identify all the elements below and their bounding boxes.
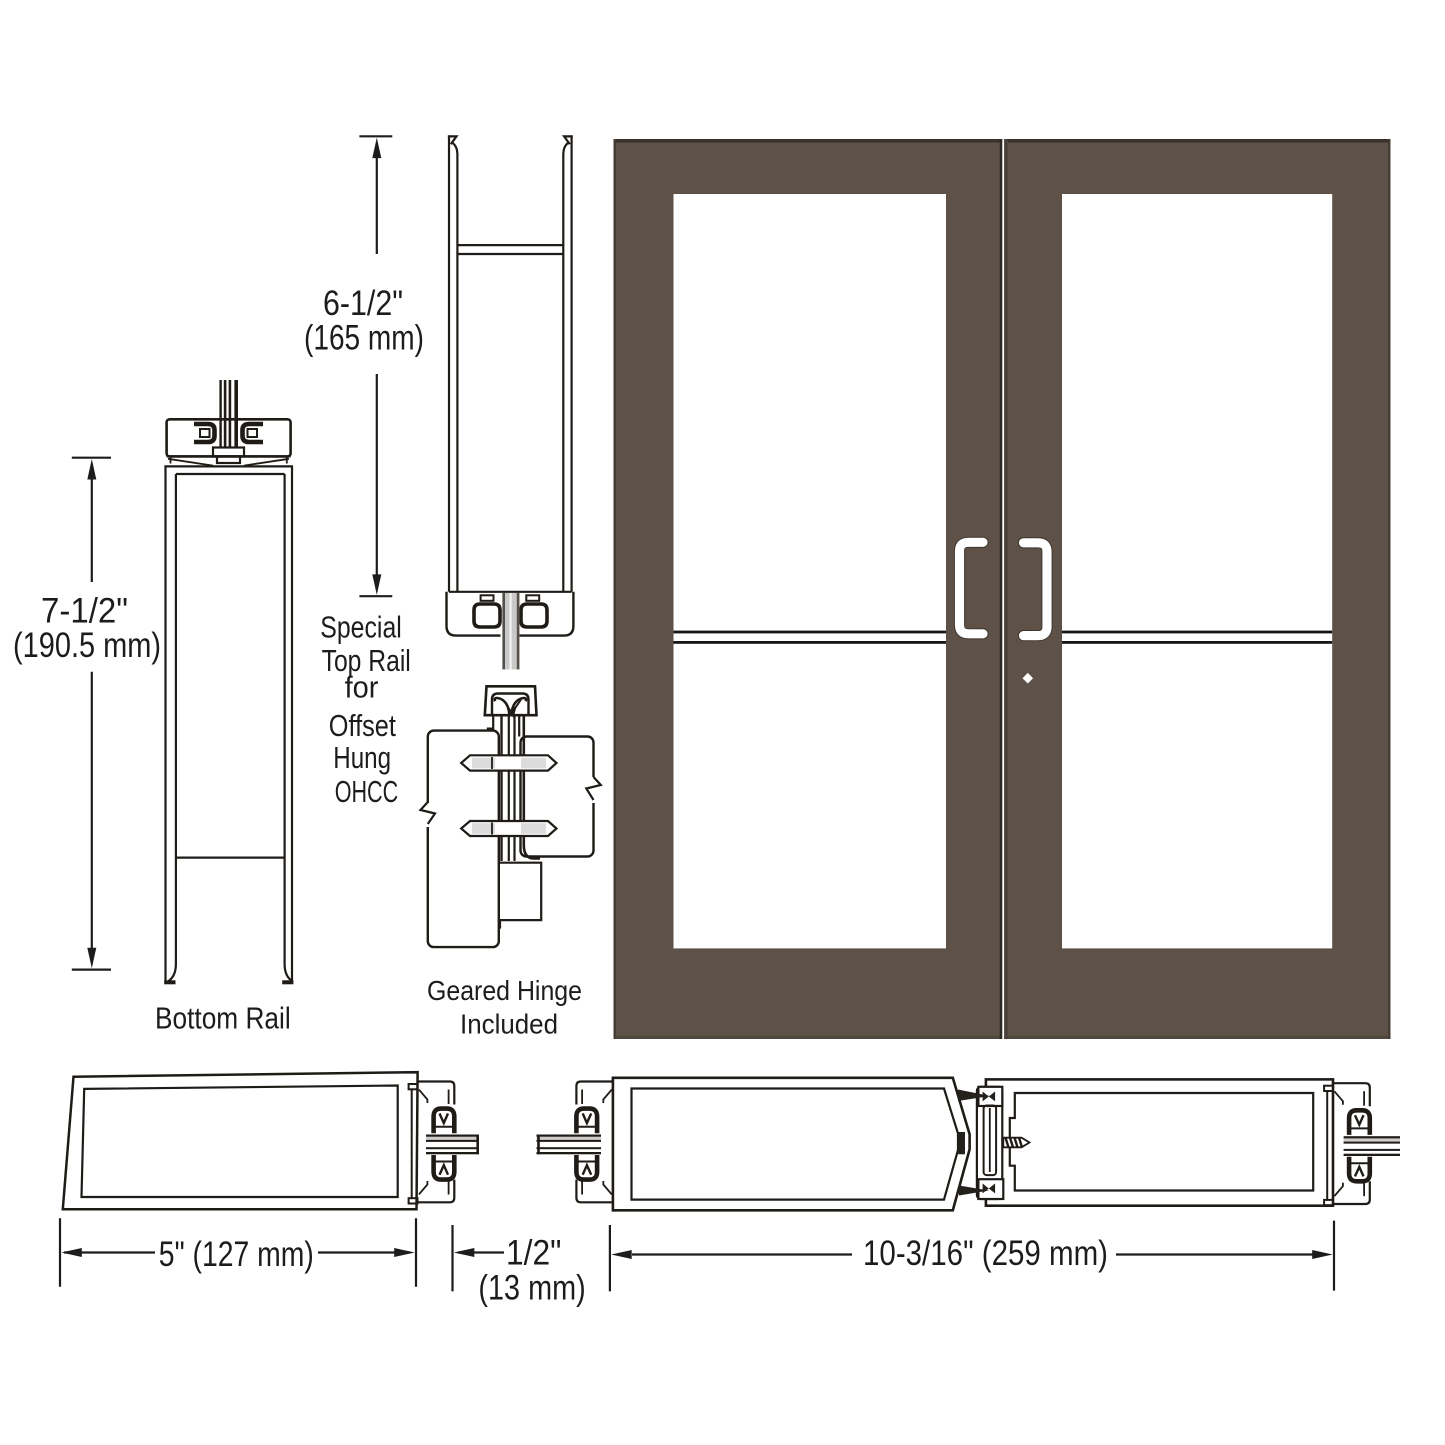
svg-text:Special: Special	[320, 609, 402, 644]
svg-text:OHCC: OHCC	[335, 774, 399, 809]
svg-text:for: for	[345, 670, 379, 705]
svg-text:Bottom Rail: Bottom Rail	[155, 1001, 291, 1036]
svg-text:Hung: Hung	[333, 740, 391, 775]
svg-text:Geared Hinge: Geared Hinge	[427, 975, 582, 1006]
svg-text:Included: Included	[460, 1009, 558, 1040]
svg-text:Offset: Offset	[329, 708, 396, 743]
svg-text:10-3/16" (259 mm): 10-3/16" (259 mm)	[863, 1233, 1108, 1273]
svg-text:(165 mm): (165 mm)	[304, 318, 424, 358]
svg-text:(13 mm): (13 mm)	[478, 1268, 585, 1308]
svg-text:(190.5 mm): (190.5 mm)	[13, 625, 161, 665]
svg-text:5" (127 mm): 5" (127 mm)	[159, 1234, 314, 1274]
